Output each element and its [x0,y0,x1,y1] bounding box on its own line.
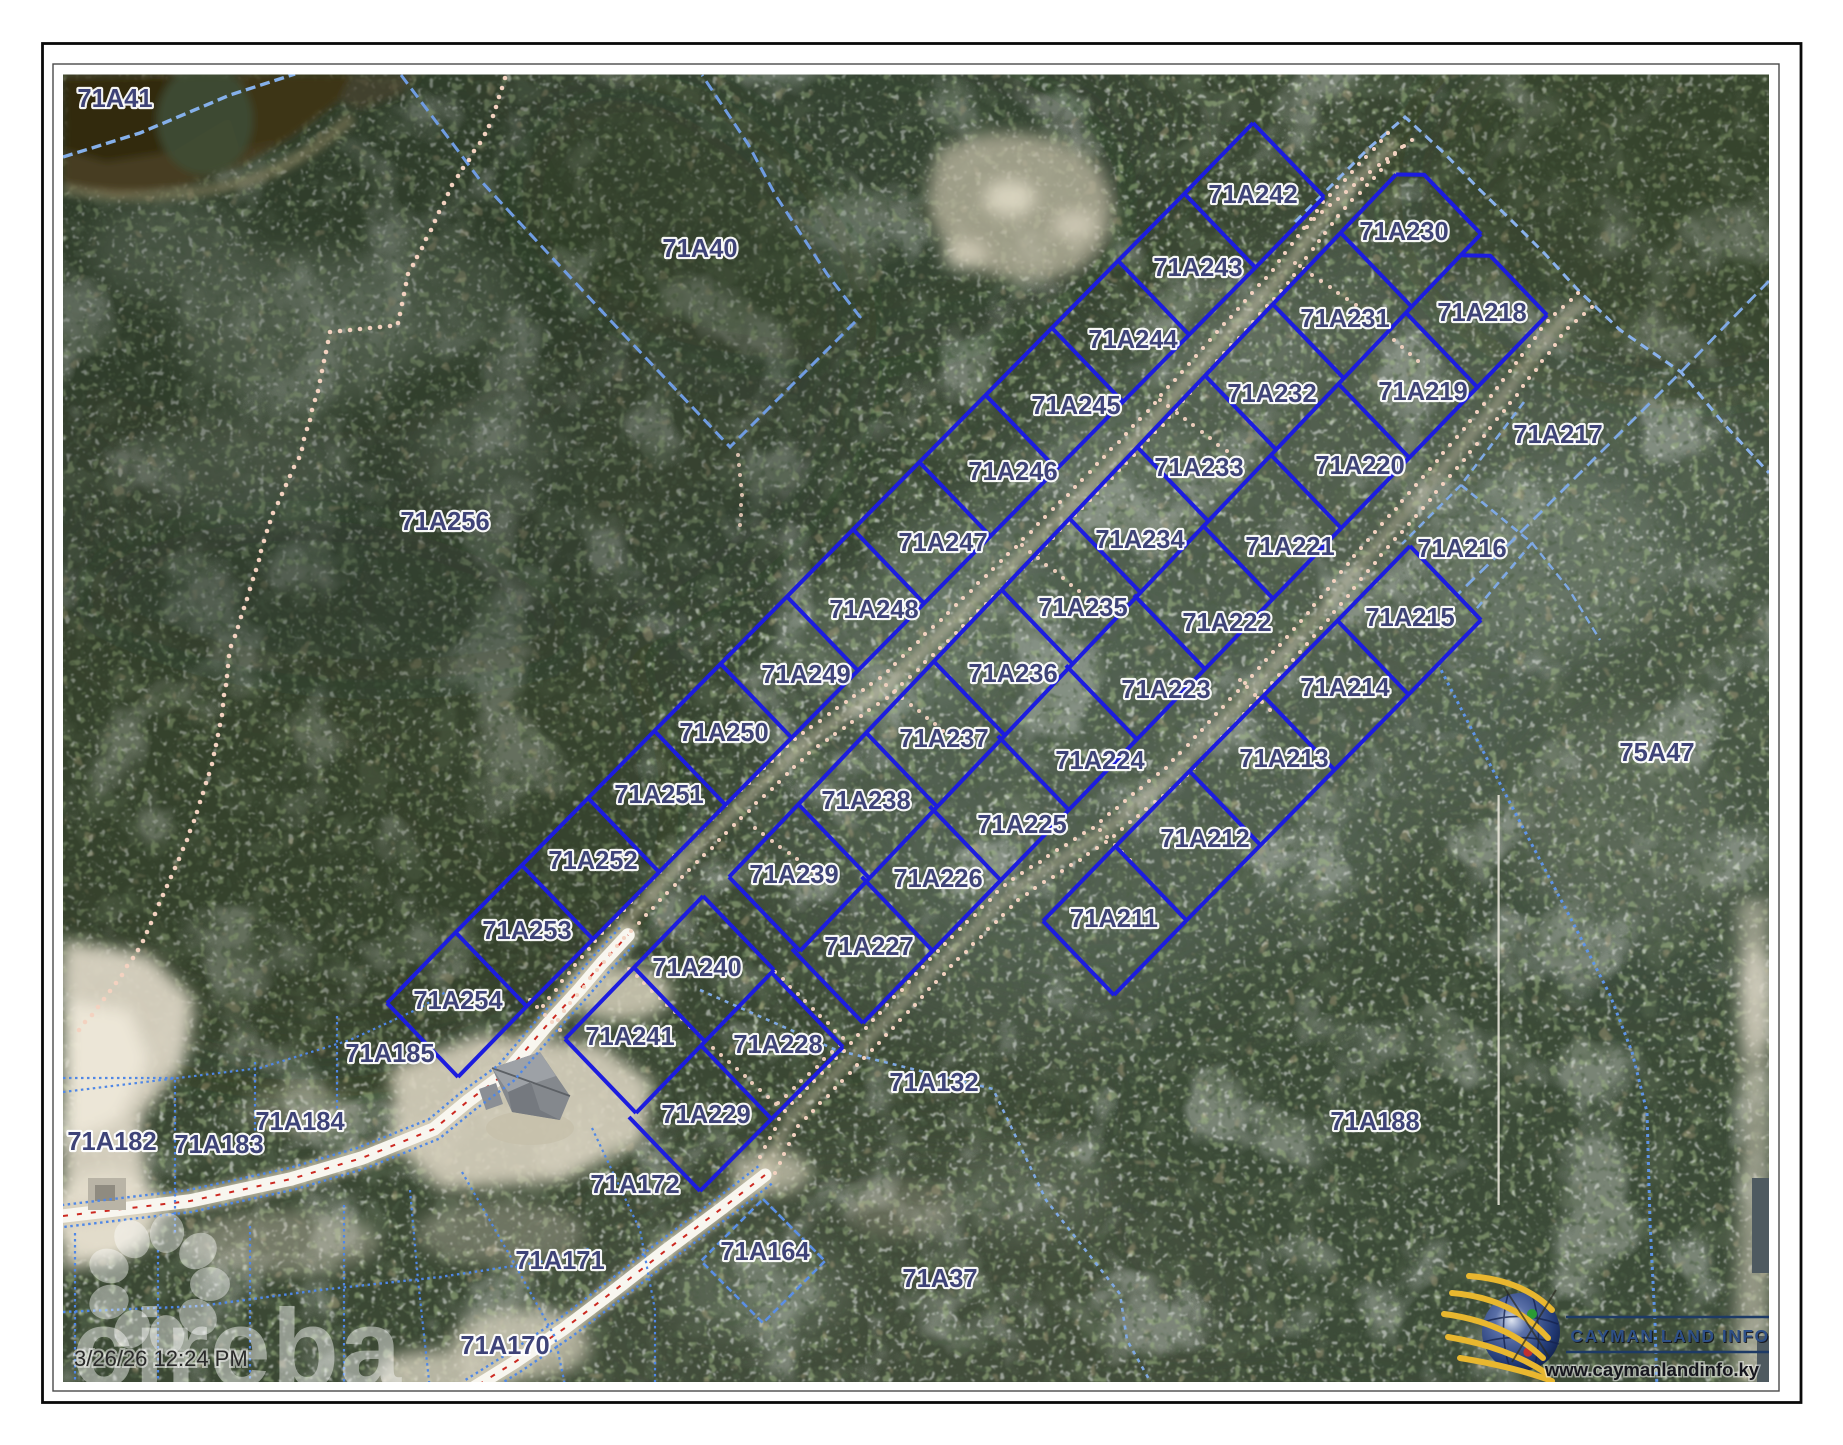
svg-text:3/26/26 12:24 PM: 3/26/26 12:24 PM [74,1346,248,1371]
svg-text:71A232: 71A232 [1227,380,1316,408]
svg-text:71A223: 71A223 [1121,676,1210,704]
svg-text:71A212: 71A212 [1160,825,1249,853]
svg-text:71A188: 71A188 [1330,1108,1419,1136]
svg-text:71A183: 71A183 [174,1131,263,1159]
svg-text:71A228: 71A228 [733,1031,822,1059]
svg-text:71A221: 71A221 [1245,533,1334,561]
svg-text:71A239: 71A239 [749,861,838,889]
svg-text:71A249: 71A249 [761,661,850,689]
svg-text:71A248: 71A248 [829,596,918,624]
svg-text:71A184: 71A184 [255,1108,345,1136]
svg-text:71A253: 71A253 [482,917,571,945]
svg-text:71A230: 71A230 [1359,218,1448,246]
svg-text:71A132: 71A132 [889,1069,978,1097]
svg-text:71A256: 71A256 [400,508,489,536]
svg-text:71A211: 71A211 [1070,905,1158,933]
svg-text:71A241: 71A241 [585,1023,674,1051]
svg-text:71A220: 71A220 [1315,452,1404,480]
svg-text:71A37: 71A37 [902,1265,977,1293]
svg-text:71A250: 71A250 [679,719,768,747]
svg-text:71A172: 71A172 [590,1171,679,1199]
svg-text:71A251: 71A251 [614,781,703,809]
svg-text:71A41: 71A41 [77,85,152,113]
svg-text:71A214: 71A214 [1300,674,1390,702]
svg-text:71A240: 71A240 [652,954,741,982]
svg-text:71A170: 71A170 [460,1332,549,1360]
svg-text:CAYMAN LAND INFO: CAYMAN LAND INFO [1570,1326,1769,1346]
svg-text:71A247: 71A247 [898,529,987,557]
svg-text:71A182: 71A182 [67,1128,156,1156]
svg-text:71A226: 71A226 [893,865,982,893]
svg-text:71A215: 71A215 [1365,604,1454,632]
svg-text:71A216: 71A216 [1417,535,1506,563]
svg-text:71A217: 71A217 [1513,421,1602,449]
svg-text:71A185: 71A185 [345,1040,434,1068]
svg-text:71A222: 71A222 [1182,609,1271,637]
svg-text:71A213: 71A213 [1239,745,1328,773]
svg-text:71A243: 71A243 [1153,254,1242,282]
svg-text:75A47: 75A47 [1619,739,1694,767]
svg-text:71A242: 71A242 [1208,181,1297,209]
svg-text:71A171: 71A171 [515,1247,604,1275]
svg-text:71A231: 71A231 [1300,305,1389,333]
svg-text:71A229: 71A229 [661,1101,750,1129]
svg-text:71A237: 71A237 [899,725,988,753]
svg-text:71A224: 71A224 [1055,747,1145,775]
svg-text:71A235: 71A235 [1038,594,1127,622]
svg-text:71A236: 71A236 [968,660,1057,688]
svg-text:71A246: 71A246 [968,458,1057,486]
svg-text:71A244: 71A244 [1088,326,1178,354]
svg-text:www.caymanlandinfo.ky: www.caymanlandinfo.ky [1544,1359,1760,1380]
svg-text:71A233: 71A233 [1154,454,1243,482]
svg-text:71A245: 71A245 [1031,392,1120,420]
svg-text:71A238: 71A238 [821,787,910,815]
svg-text:71A164: 71A164 [720,1238,810,1266]
svg-text:71A219: 71A219 [1378,378,1467,406]
svg-text:71A227: 71A227 [824,933,913,961]
svg-text:71A40: 71A40 [662,235,737,263]
svg-text:71A252: 71A252 [548,847,637,875]
svg-text:71A218: 71A218 [1437,299,1526,327]
svg-text:71A234: 71A234 [1095,526,1185,554]
svg-text:71A254: 71A254 [413,987,503,1015]
svg-text:71A225: 71A225 [977,811,1066,839]
